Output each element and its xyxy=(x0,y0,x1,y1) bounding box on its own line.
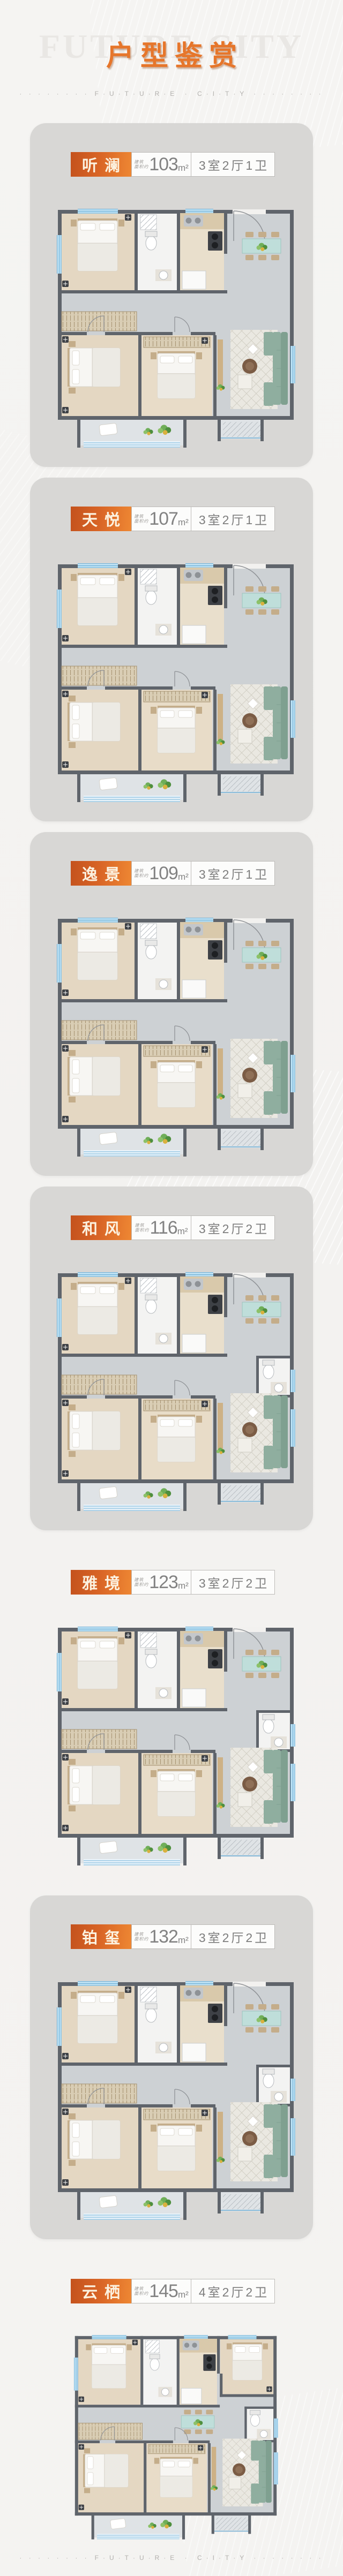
plan-name-tag: 天悦 xyxy=(71,507,131,531)
plan-name-tag: 和风 xyxy=(71,1215,131,1240)
area-prefix: 建筑面积约 xyxy=(134,1577,148,1587)
plan-name: 听澜 xyxy=(82,153,127,176)
plan-area: 建筑面积约 103 m² xyxy=(131,152,191,177)
plan-config: 3室2厅1卫 xyxy=(191,507,275,531)
plan-area: 建筑面积约 123 m² xyxy=(131,1570,191,1595)
plan-name-tag: 铂玺 xyxy=(71,1924,131,1949)
area-value: 109 xyxy=(149,864,178,882)
plan-header: 雅境 建筑面积约 123 m² 3室2厅2卫 xyxy=(71,1570,275,1595)
subtitle-text: F·U·T·U·R·E · C·I·T·Y xyxy=(95,2554,249,2562)
area-prefix: 建筑面积约 xyxy=(135,1223,149,1233)
plan-config: 3室2厅2卫 xyxy=(191,1924,275,1949)
dots-right: · · · · · · · · xyxy=(253,90,323,97)
plan-header: 天悦 建筑面积约 107 m² 3室2厅1卫 xyxy=(71,507,275,531)
floor-plan-image xyxy=(54,2332,298,2548)
plan-name-tag: 雅境 xyxy=(71,1570,131,1595)
area-value: 103 xyxy=(149,155,178,173)
area-value: 145 xyxy=(149,2282,178,2300)
floor-plan-card[interactable]: 逸景 建筑面积约 109 m² 3室2厅1卫 xyxy=(0,832,343,1187)
plan-header: 和风 建筑面积约 116 m² 3室2厅2卫 xyxy=(71,1215,275,1240)
floor-plan-image xyxy=(54,1269,298,1521)
area-prefix: 建筑面积约 xyxy=(134,868,148,878)
area-prefix: 建筑面积约 xyxy=(134,514,148,524)
config-text: 3室2厅1卫 xyxy=(199,864,269,882)
area-value: 107 xyxy=(149,510,178,528)
floor-plan-list: 听澜 建筑面积约 103 m² 3室2厅1卫 天悦 xyxy=(0,123,343,2539)
plan-name-tag: 听澜 xyxy=(71,152,131,177)
area-prefix: 建筑面积约 xyxy=(134,1932,148,1942)
plan-area: 建筑面积约 107 m² xyxy=(131,507,191,531)
area-unit: m² xyxy=(178,872,189,881)
config-text: 3室2厅2卫 xyxy=(199,1219,269,1237)
plan-header: 逸景 建筑面积约 109 m² 3室2厅1卫 xyxy=(71,861,275,886)
config-text: 4室2厅2卫 xyxy=(199,2282,269,2300)
floor-plan-card[interactable]: 云栖 建筑面积约 145 m² 4室2厅2卫 xyxy=(0,2250,343,2539)
floor-plan-image xyxy=(54,560,298,812)
plan-header: 云栖 建筑面积约 145 m² 4室2厅2卫 xyxy=(71,2279,275,2303)
floor-plan-card[interactable]: 天悦 建筑面积约 107 m² 3室2厅1卫 xyxy=(0,478,343,832)
plan-name-tag: 云栖 xyxy=(71,2279,131,2303)
plan-area: 建筑面积约 116 m² xyxy=(131,1215,191,1240)
config-text: 3室2厅2卫 xyxy=(199,1573,269,1591)
config-text: 3室2厅2卫 xyxy=(199,1928,269,1946)
area-value: 116 xyxy=(150,1219,177,1237)
area-prefix: 建筑面积约 xyxy=(134,2286,148,2296)
plan-name: 铂玺 xyxy=(82,1925,127,1948)
floor-plan-image xyxy=(54,1623,298,1875)
plan-header: 铂玺 建筑面积约 132 m² 3室2厅2卫 xyxy=(71,1924,275,1949)
page-subtitle: · · · · · · · ·F·U·T·U·R·E · C·I·T·Y· · … xyxy=(0,90,343,97)
floor-plan-image xyxy=(54,206,298,457)
floor-plan-card[interactable]: 铂玺 建筑面积约 132 m² 3室2厅2卫 xyxy=(0,1895,343,2250)
dots-right: · · · · · · · · xyxy=(253,2554,323,2562)
plan-name-tag: 逸景 xyxy=(71,861,131,886)
floor-plan-image xyxy=(54,915,298,1166)
plan-name: 云栖 xyxy=(82,2280,127,2302)
floor-plan-image xyxy=(54,1978,298,2230)
page-title: 户型鉴赏 xyxy=(0,33,343,73)
floor-plan-card[interactable]: 听澜 建筑面积约 103 m² 3室2厅1卫 xyxy=(0,123,343,478)
footer-subtitle: · · · · · · · ·F·U·T·U·R·E · C·I·T·Y· · … xyxy=(0,2554,343,2562)
floor-plan-card[interactable]: 和风 建筑面积约 116 m² 3室2厅2卫 xyxy=(0,1187,343,1541)
plan-header: 听澜 建筑面积约 103 m² 3室2厅1卫 xyxy=(71,152,275,177)
area-unit: m² xyxy=(178,2290,189,2299)
area-unit: m² xyxy=(178,163,189,172)
plan-config: 3室2厅2卫 xyxy=(191,1215,275,1240)
subtitle-text: F·U·T·U·R·E · C·I·T·Y xyxy=(95,90,249,97)
area-value: 123 xyxy=(149,1573,178,1591)
area-prefix: 建筑面积约 xyxy=(134,160,148,169)
plan-config: 4室2厅2卫 xyxy=(191,2279,275,2303)
plan-name: 天悦 xyxy=(82,508,127,530)
area-unit: m² xyxy=(178,1936,189,1945)
area-unit: m² xyxy=(177,1227,188,1236)
config-text: 3室2厅1卫 xyxy=(199,155,269,173)
plan-config: 3室2厅1卫 xyxy=(191,861,275,886)
config-text: 3室2厅1卫 xyxy=(199,510,269,528)
page-header: FUTURE CITY 户型鉴赏 · · · · · · · ·F·U·T·U·… xyxy=(0,0,343,123)
area-value: 132 xyxy=(149,1928,178,1946)
dots-left: · · · · · · · · xyxy=(19,90,89,97)
plan-area: 建筑面积约 145 m² xyxy=(131,2279,191,2303)
plan-name: 逸景 xyxy=(82,862,127,885)
plan-name: 和风 xyxy=(82,1217,127,1239)
area-unit: m² xyxy=(178,518,189,527)
plan-config: 3室2厅1卫 xyxy=(191,152,275,177)
plan-area: 建筑面积约 132 m² xyxy=(131,1924,191,1949)
page-footer: · · · · · · · ·F·U·T·U·R·E · C·I·T·Y· · … xyxy=(0,2539,343,2571)
floor-plan-card[interactable]: 雅境 建筑面积约 123 m² 3室2厅2卫 xyxy=(0,1541,343,1895)
plan-area: 建筑面积约 109 m² xyxy=(131,861,191,886)
dots-left: · · · · · · · · xyxy=(19,2554,89,2562)
plan-config: 3室2厅2卫 xyxy=(191,1570,275,1595)
area-unit: m² xyxy=(178,1581,189,1590)
plan-name: 雅境 xyxy=(82,1571,127,1593)
page: FUTURE CITY 户型鉴赏 · · · · · · · ·F·U·T·U·… xyxy=(0,0,343,2576)
